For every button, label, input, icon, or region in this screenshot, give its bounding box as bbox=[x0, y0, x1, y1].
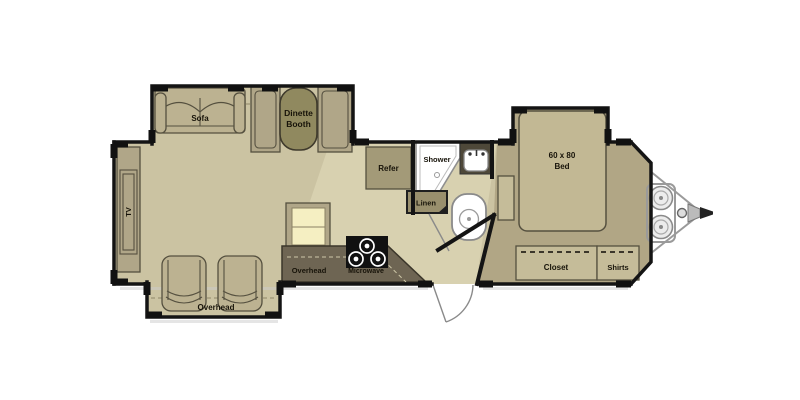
floor-plan-page: Sofa Dinette Booth TV Refer Shower Linen… bbox=[0, 0, 800, 400]
faucet-handle-icon bbox=[468, 152, 471, 155]
bed bbox=[519, 111, 606, 231]
coupler-plate bbox=[688, 204, 700, 222]
tongue-jack-icon bbox=[678, 209, 687, 218]
dinette-label-line2: Booth bbox=[286, 119, 311, 129]
dinette-bench-right bbox=[318, 87, 352, 152]
bed-label-line1: 60 x 80 bbox=[549, 151, 576, 160]
burner-center bbox=[365, 244, 370, 249]
linen-label: Linen bbox=[416, 199, 436, 208]
propane-tank-cap bbox=[659, 225, 663, 229]
dinette-label-line1: Dinette bbox=[284, 108, 313, 118]
entry-door bbox=[433, 285, 473, 322]
burner-center bbox=[376, 257, 381, 262]
sofa-label: Sofa bbox=[191, 114, 209, 123]
entry-door-panel bbox=[433, 285, 446, 322]
sofa-armrest bbox=[234, 93, 245, 133]
hitch-assembly bbox=[647, 171, 713, 254]
nightstand bbox=[498, 176, 514, 220]
shirts-label: Shirts bbox=[607, 263, 628, 272]
coupler-icon bbox=[700, 207, 713, 219]
microwave-label: Microwave bbox=[348, 268, 384, 275]
sofa-armrest bbox=[155, 93, 166, 133]
refer-label: Refer bbox=[378, 164, 398, 173]
floor-plan-svg: Sofa Dinette Booth TV Refer Shower Linen… bbox=[0, 0, 800, 400]
entry-door-arc bbox=[446, 285, 473, 322]
shower-label: Shower bbox=[423, 155, 450, 164]
tv-label: TV bbox=[124, 207, 133, 217]
propane-tank-cap bbox=[659, 196, 663, 200]
faucet-handle-icon bbox=[481, 152, 484, 155]
closet-label: Closet bbox=[544, 263, 569, 272]
sofa bbox=[155, 88, 245, 133]
overhead-chairs-label: Overhead bbox=[198, 303, 235, 312]
burner-center bbox=[354, 257, 359, 262]
stove-icon bbox=[346, 236, 388, 268]
overhead-kitchen-label: Overhead bbox=[292, 266, 327, 275]
bed-label-line2: Bed bbox=[554, 162, 569, 171]
toilet-flush bbox=[467, 217, 471, 221]
